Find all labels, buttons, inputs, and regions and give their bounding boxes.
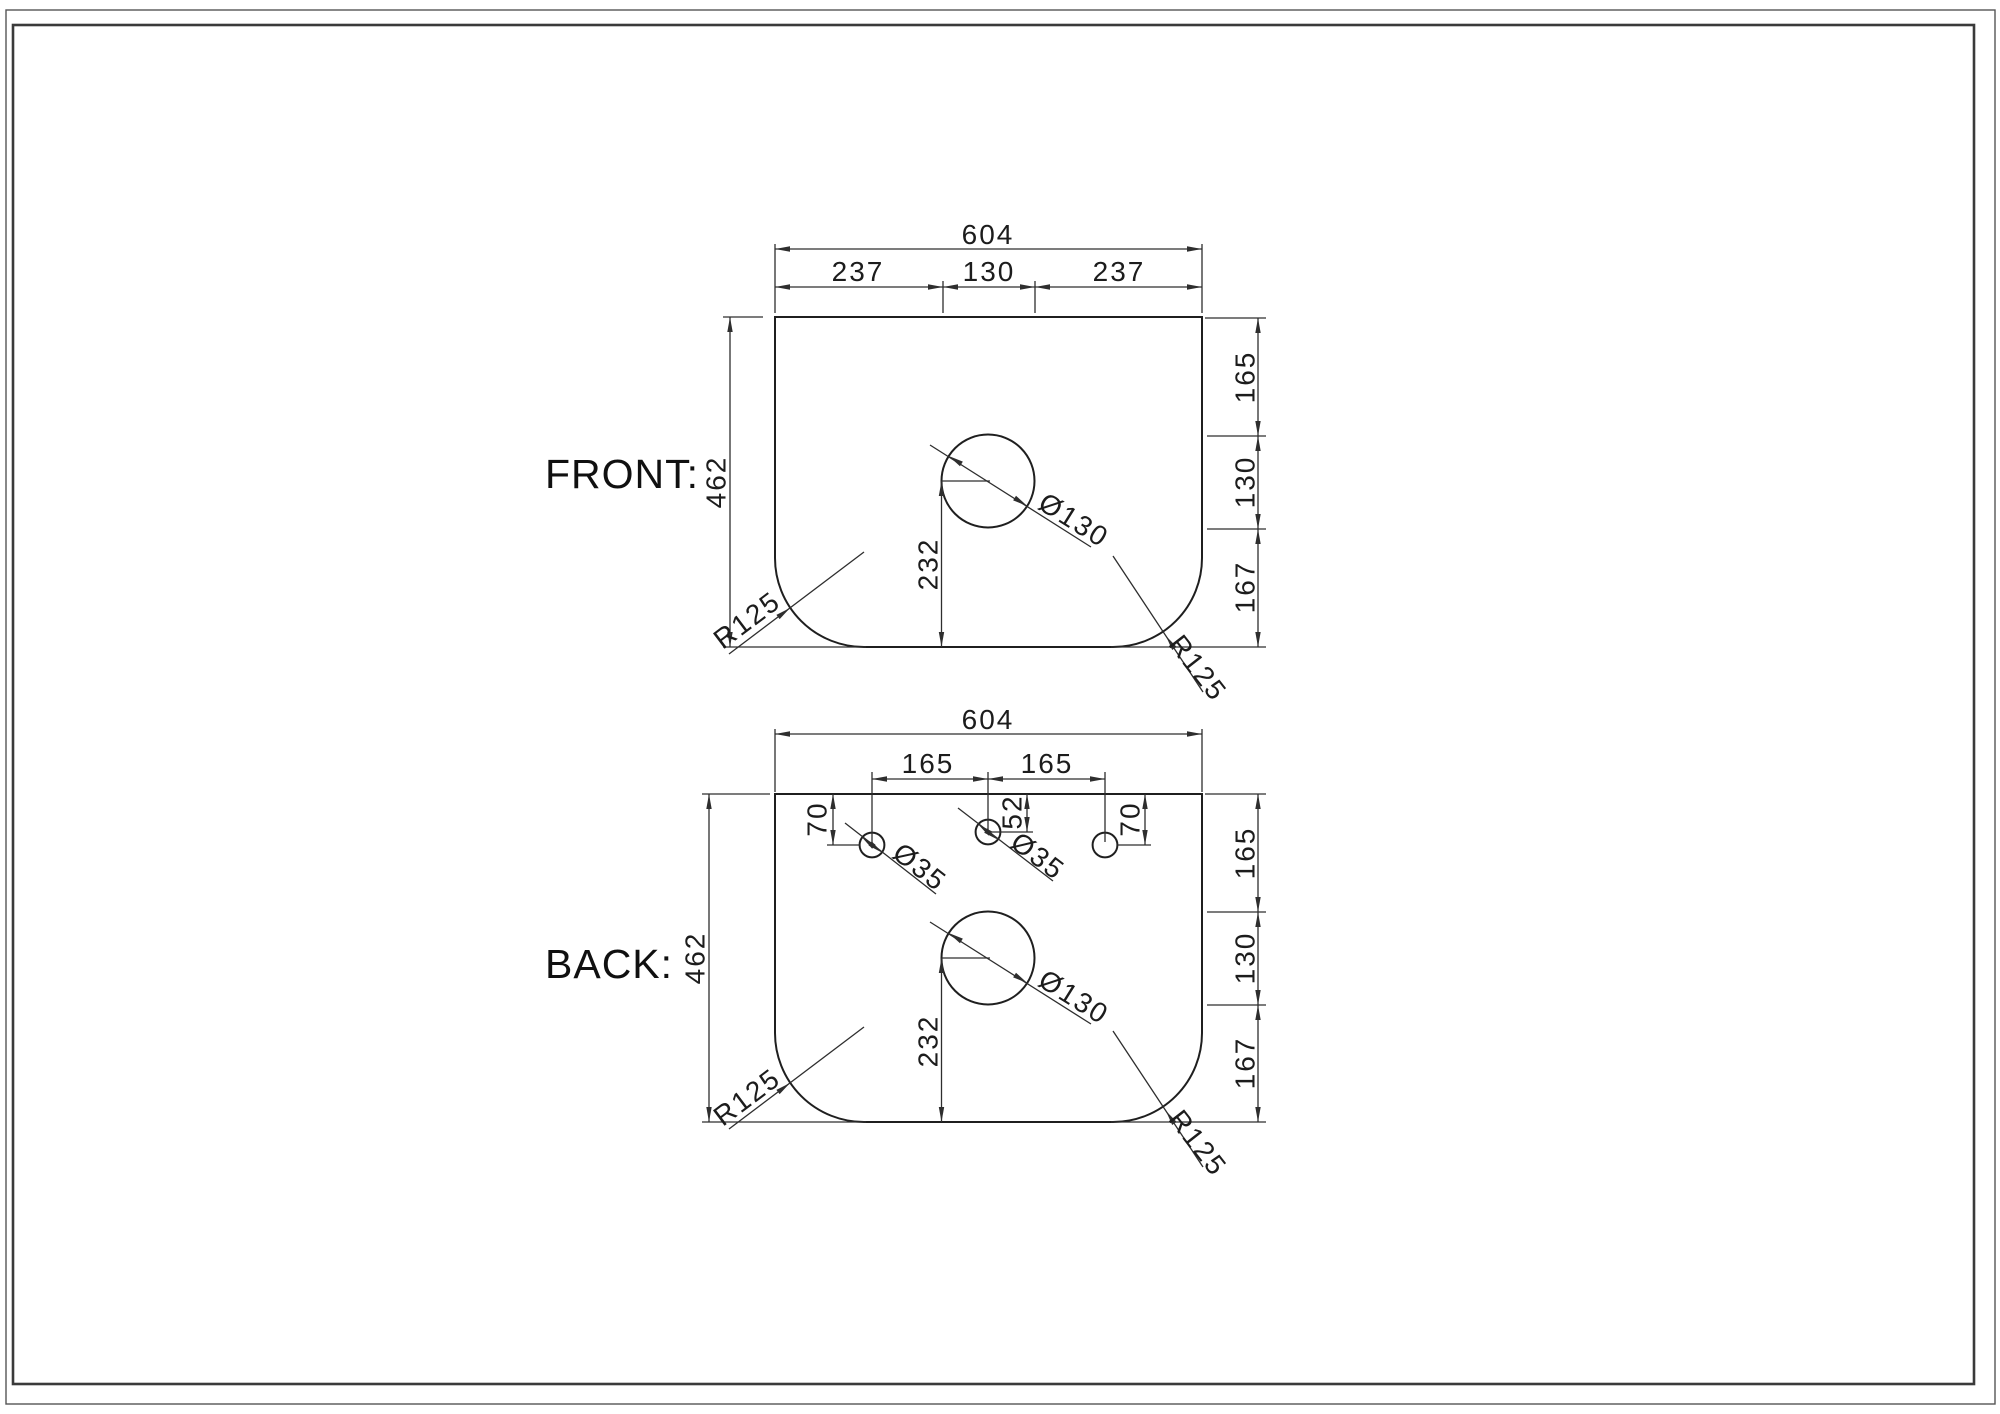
back-dim-right-mid-text: 130 (1230, 932, 1261, 985)
back-dim-offset-right: 70 (1115, 794, 1152, 845)
front-dim-right-mid-text: 130 (1230, 456, 1261, 509)
front-dim-seg-right-text: 237 (1093, 256, 1146, 287)
front-dim-top-segments: 237 130 237 (775, 256, 1202, 313)
front-dim-seg-mid-text: 130 (963, 256, 1016, 287)
back-dim-offset-left: 70 (802, 794, 861, 845)
back-view-label: BACK: (545, 941, 673, 987)
back-dim-offset-mid-text: 52 (997, 794, 1028, 829)
back-dim-right-segments: 165 130 167 (1205, 794, 1266, 1122)
back-dim-radius-br-text: R125 (1163, 1104, 1234, 1182)
back-dim-radius-bl: R125 (708, 1027, 864, 1132)
back-dim-total-height-text: 462 (680, 932, 711, 985)
back-view: BACK: 604 165 165 (545, 704, 1266, 1182)
back-dim-hole-dia: Ø130 (930, 922, 1115, 1030)
back-dim-small-dia-mid-text: Ø35 (1005, 826, 1071, 886)
back-dim-spacing-right-text: 165 (1021, 748, 1074, 779)
drawing-sheet: FRONT: 604 237 130 237 (0, 0, 2000, 1414)
front-dim-radius-br-text: R125 (1163, 629, 1234, 707)
back-dim-hole-dia-text: Ø130 (1033, 964, 1114, 1031)
front-dim-total-height-text: 462 (701, 456, 732, 509)
front-dim-total-width-text: 604 (962, 219, 1015, 250)
front-dim-right-bot-text: 167 (1230, 561, 1261, 614)
front-dim-center-height-text: 232 (913, 538, 944, 591)
front-dim-hole-dia-text: Ø130 (1033, 487, 1114, 554)
front-dim-hole-dia: Ø130 (930, 445, 1115, 553)
front-dim-radius-br: R125 (1113, 556, 1233, 707)
back-dim-right-bot-text: 167 (1230, 1037, 1261, 1090)
back-dim-offset-left-text: 70 (802, 801, 833, 836)
back-dim-spacing-left-text: 165 (902, 748, 955, 779)
back-dim-offset-mid: 52 (988, 794, 1033, 832)
front-dim-right-top-text: 165 (1230, 351, 1261, 404)
back-dim-offset-right-text: 70 (1115, 801, 1146, 836)
front-view-label: FRONT: (545, 451, 699, 497)
front-dim-radius-bl: R125 (708, 552, 864, 655)
front-dim-seg-left-text: 237 (832, 256, 885, 287)
back-dim-center-height-text: 232 (913, 1015, 944, 1068)
front-dim-right-segments: 165 130 167 (1205, 318, 1266, 647)
back-dim-total-width-text: 604 (962, 704, 1015, 735)
back-dim-small-dia-left: Ø35 (845, 823, 953, 897)
back-dim-right-top-text: 165 (1230, 827, 1261, 880)
back-dim-radius-br: R125 (1113, 1031, 1233, 1182)
back-dim-center-height: 232 (913, 958, 945, 1122)
back-dim-small-dia-left-text: Ø35 (887, 837, 953, 898)
front-dim-center-height: 232 (913, 481, 945, 647)
front-view: FRONT: 604 237 130 237 (545, 219, 1266, 707)
